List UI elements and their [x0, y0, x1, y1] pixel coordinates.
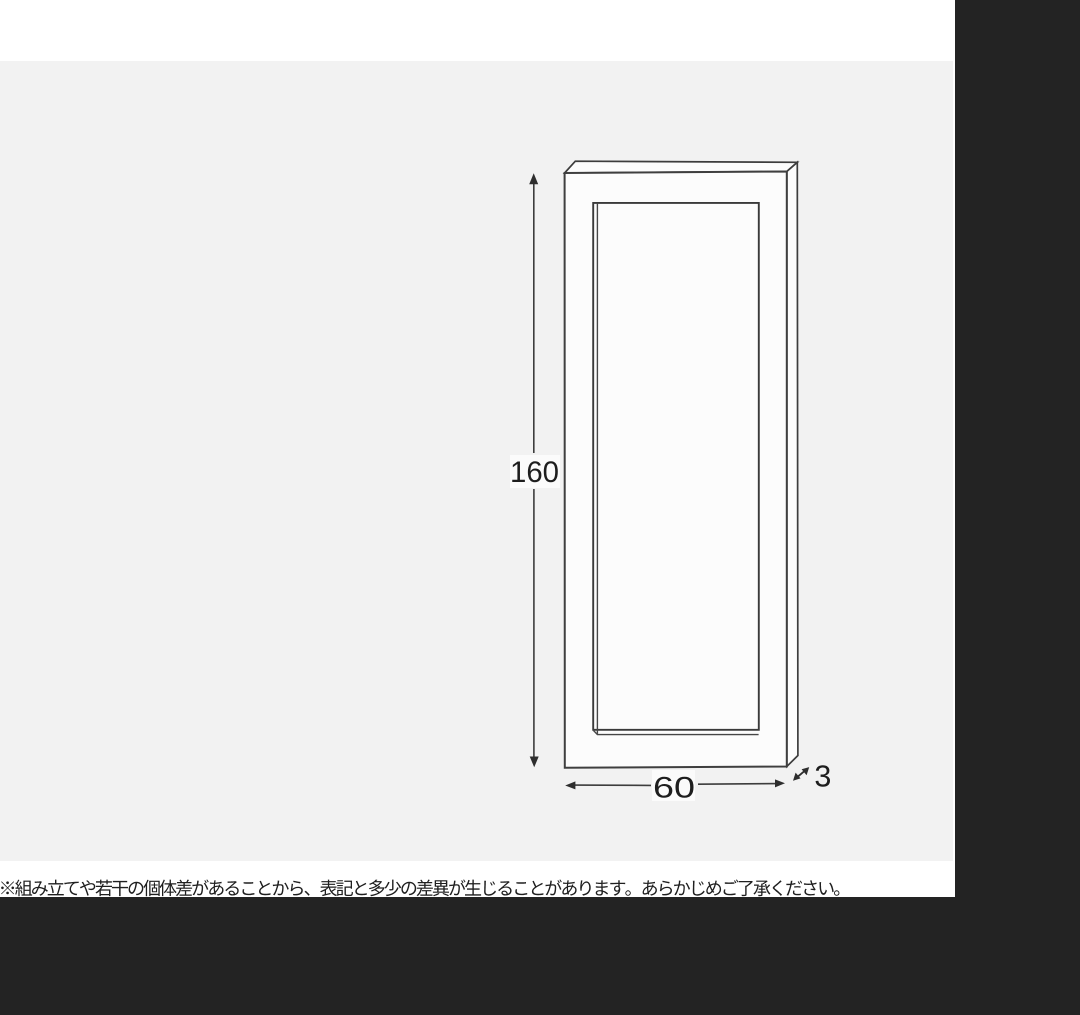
svg-text:3: 3 [814, 759, 831, 793]
svg-text:60: 60 [653, 772, 695, 805]
svg-text:160: 160 [510, 456, 559, 489]
